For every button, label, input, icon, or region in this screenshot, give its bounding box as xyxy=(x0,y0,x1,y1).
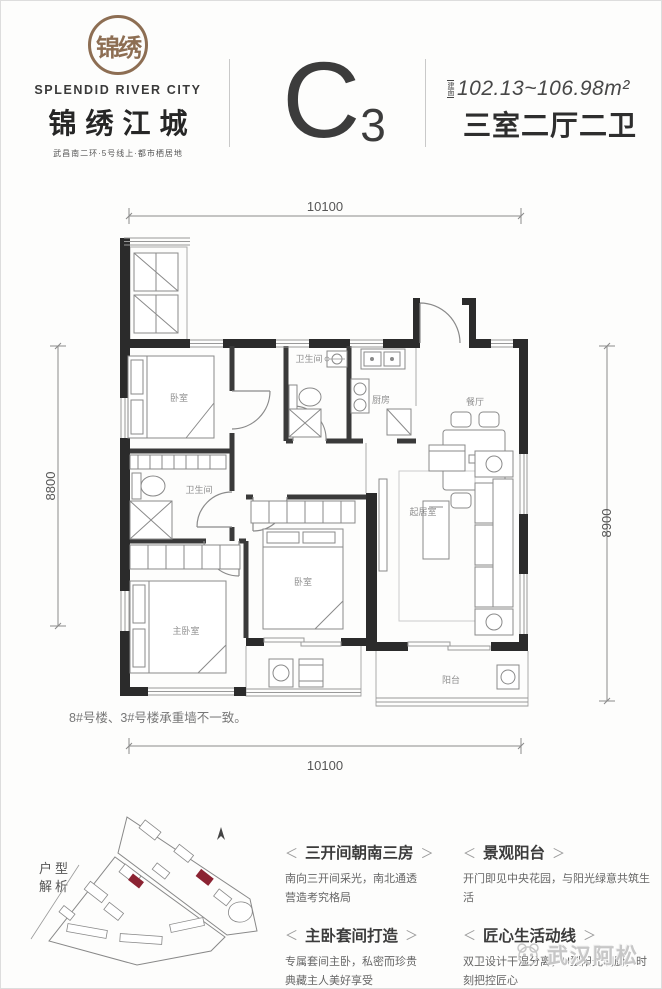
feature-three-south-rooms: ＜ 三开间朝南三房 ＞ 南向三开间采光，南北通透 营造考究格局 xyxy=(285,841,441,909)
room-label-master-bedroom: 主卧室 xyxy=(172,625,199,636)
area-value: 102.13~106.98m² xyxy=(457,77,630,101)
room-label-bath-center: 卫生间 xyxy=(295,353,322,364)
area-tag: 建面 xyxy=(447,80,454,98)
unit-letter: C xyxy=(282,49,360,152)
feature-title: ＜ 主卧套间打造 ＞ xyxy=(285,924,441,946)
feature-desc: 开门即见中央花园，与阳光绿意共筑生活 xyxy=(463,870,657,909)
room-label-bath-left: 卫生间 xyxy=(185,484,212,495)
feature-desc: 专属套间主卧，私密而珍贵 典藏主人美好享受 xyxy=(285,953,441,989)
bracket-left: ＜ xyxy=(285,925,298,944)
room-label-living: 起居室 xyxy=(409,506,436,517)
brand-seal-icon: 锦绣 xyxy=(88,15,148,75)
site-map: 户型 解析 xyxy=(25,809,275,987)
room-label-bedroom-center: 卧室 xyxy=(294,576,312,587)
feature-title-text: 三开间朝南三房 xyxy=(305,841,414,863)
room-label-dining: 餐厅 xyxy=(466,396,484,407)
feature-title-text: 景观阳台 xyxy=(483,841,545,863)
bracket-left: ＜ xyxy=(463,843,476,862)
watermark: 武汉阿松 xyxy=(513,940,639,970)
floorplan-poster: 锦绣 SPLENDID RIVER CITY 锦绣江城 武昌南二环·5号线上·都… xyxy=(0,0,662,989)
bracket-left: ＜ xyxy=(463,925,476,944)
bracket-left: ＜ xyxy=(285,843,298,862)
feature-landscape-balcony: ＜ 景观阳台 ＞ 开门即见中央花园，与阳光绿意共筑生活 xyxy=(463,841,657,909)
map-label-line2: 解析 xyxy=(39,879,71,894)
panda-icon xyxy=(513,941,541,969)
bracket-right: ＞ xyxy=(552,843,565,862)
bracket-right: ＞ xyxy=(405,925,418,944)
dim-bottom: 10100 xyxy=(307,758,343,773)
brand-logo: 锦绣 SPLENDID RIVER CITY 锦绣江城 武昌南二环·5号线上·都… xyxy=(23,11,213,159)
room-label-kitchen: 厨房 xyxy=(372,394,390,405)
feature-desc: 南向三开间采光，南北通透 营造考究格局 xyxy=(285,870,441,909)
header-divider-left xyxy=(229,59,230,147)
brand-name-en: SPLENDID RIVER CITY xyxy=(23,83,213,97)
unit-code: C 3 xyxy=(259,49,409,152)
room-label-bedroom-top: 卧室 xyxy=(170,392,188,403)
map-label-line1: 户型 xyxy=(39,861,71,876)
layout-label: 三室二厅二卫 xyxy=(447,104,653,144)
feature-master-suite: ＜ 主卧套间打造 ＞ 专属套间主卧，私密而珍贵 典藏主人美好享受 xyxy=(285,924,441,989)
dim-right: 8900 xyxy=(599,509,614,538)
area-row: 建面 102.13~106.98m² xyxy=(447,77,630,101)
feature-title: ＜ 景观阳台 ＞ xyxy=(463,841,657,863)
site-buildings-highlighted xyxy=(128,869,214,889)
feature-title-text: 主卧套间打造 xyxy=(305,924,398,946)
plan-note: 8#号楼、3#号楼承重墙不一致。 xyxy=(69,710,247,725)
site-buildings xyxy=(59,820,252,945)
dim-top: 10100 xyxy=(307,199,343,214)
dim-left: 8800 xyxy=(43,472,58,501)
unit-number: 3 xyxy=(360,99,386,152)
room-label-balcony: 阳台 xyxy=(442,674,460,685)
header-divider-right xyxy=(425,59,426,147)
brand-name-cn: 锦绣江城 xyxy=(23,102,213,142)
seal-text: 锦绣 xyxy=(96,28,140,63)
watermark-text: 武汉阿松 xyxy=(547,940,639,970)
floor-plan: 10100 10100 8800 8900 xyxy=(31,193,633,793)
feature-title: ＜ 三开间朝南三房 ＞ xyxy=(285,841,441,863)
north-arrow-icon xyxy=(217,827,225,840)
bracket-right: ＞ xyxy=(421,843,434,862)
brand-tagline: 武昌南二环·5号线上·都市栖居地 xyxy=(23,148,213,159)
